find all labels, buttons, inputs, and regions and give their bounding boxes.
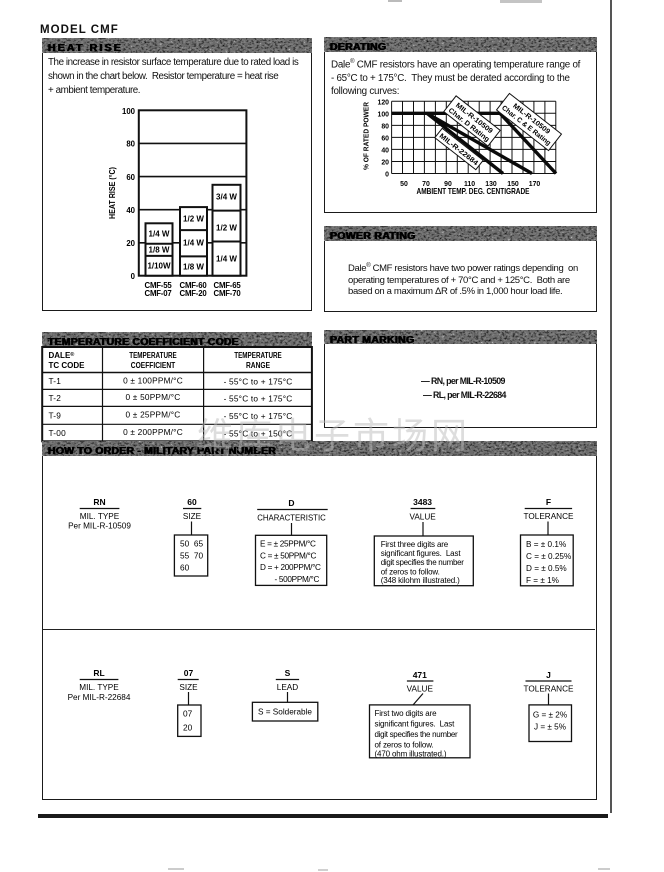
svg-text:SIZE: SIZE xyxy=(179,683,198,692)
svg-text:E = ± 25PPM/°C: E = ± 25PPM/°C xyxy=(260,540,316,549)
svg-text:F = ± 1%: F = ± 1% xyxy=(526,576,559,585)
svg-text:TOLERANCE: TOLERANCE xyxy=(524,685,574,694)
svg-text:60: 60 xyxy=(187,497,197,507)
svg-text:RL: RL xyxy=(93,668,104,678)
svg-text:C = ± 50PPM/°C: C = ± 50PPM/°C xyxy=(260,552,317,561)
svg-text:RN: RN xyxy=(93,497,105,507)
svg-text:D = ± 0.5%: D = ± 0.5% xyxy=(526,564,567,573)
svg-text:VALUE: VALUE xyxy=(407,685,434,694)
svg-text:First two digits are: First two digits are xyxy=(375,709,438,718)
svg-text:20: 20 xyxy=(183,723,193,733)
svg-text:digit specifies the number: digit specifies the number xyxy=(381,558,465,567)
svg-text:Per MIL-R-10509: Per MIL-R-10509 xyxy=(68,522,131,531)
svg-text:F: F xyxy=(546,497,551,507)
svg-text:- 500PPM/°C: - 500PPM/°C xyxy=(275,575,320,584)
svg-text:MIL. TYPE: MIL. TYPE xyxy=(80,512,120,521)
svg-text:significant figures. Last: significant figures. Last xyxy=(381,549,462,558)
svg-text:55 70: 55 70 xyxy=(180,551,203,561)
svg-text:B = ± 0.1%: B = ± 0.1% xyxy=(526,540,566,549)
svg-text:60: 60 xyxy=(180,563,190,573)
svg-text:C = ± 0.25%: C = ± 0.25% xyxy=(526,552,571,561)
svg-text:G = ± 2%: G = ± 2% xyxy=(533,711,567,720)
svg-text:significant figures. Last: significant figures. Last xyxy=(375,720,456,729)
svg-text:First three digits are: First three digits are xyxy=(381,540,449,549)
svg-text:(470 ohm illustrated.): (470 ohm illustrated.) xyxy=(375,750,447,759)
svg-text:471: 471 xyxy=(413,670,427,680)
svg-text:SIZE: SIZE xyxy=(183,512,202,521)
svg-text:S: S xyxy=(285,668,291,678)
svg-text:of zeros to follow.: of zeros to follow. xyxy=(375,741,434,750)
svg-text:(348 kilohm illustrated.): (348 kilohm illustrated.) xyxy=(381,576,460,585)
svg-text:D = + 200PPM/°C: D = + 200PPM/°C xyxy=(260,563,321,572)
svg-text:CHARACTERISTIC: CHARACTERISTIC xyxy=(257,514,326,523)
svg-text:D: D xyxy=(288,498,294,508)
svg-text:3483: 3483 xyxy=(413,497,432,507)
svg-text:J = ± 5%: J = ± 5% xyxy=(534,723,566,732)
svg-text:07: 07 xyxy=(184,668,194,678)
svg-text:LEAD: LEAD xyxy=(277,683,298,692)
svg-text:J: J xyxy=(546,670,551,680)
svg-text:TOLERANCE: TOLERANCE xyxy=(524,512,574,521)
svg-text:Per MIL-R-22684: Per MIL-R-22684 xyxy=(68,693,131,702)
svg-text:MIL. TYPE: MIL. TYPE xyxy=(79,683,119,692)
svg-text:50 65: 50 65 xyxy=(180,539,203,549)
svg-text:VALUE: VALUE xyxy=(409,513,436,522)
svg-text:S = Solderable: S = Solderable xyxy=(258,708,312,717)
svg-text:digit specifies the number: digit specifies the number xyxy=(375,730,459,739)
svg-text:07: 07 xyxy=(183,709,193,719)
